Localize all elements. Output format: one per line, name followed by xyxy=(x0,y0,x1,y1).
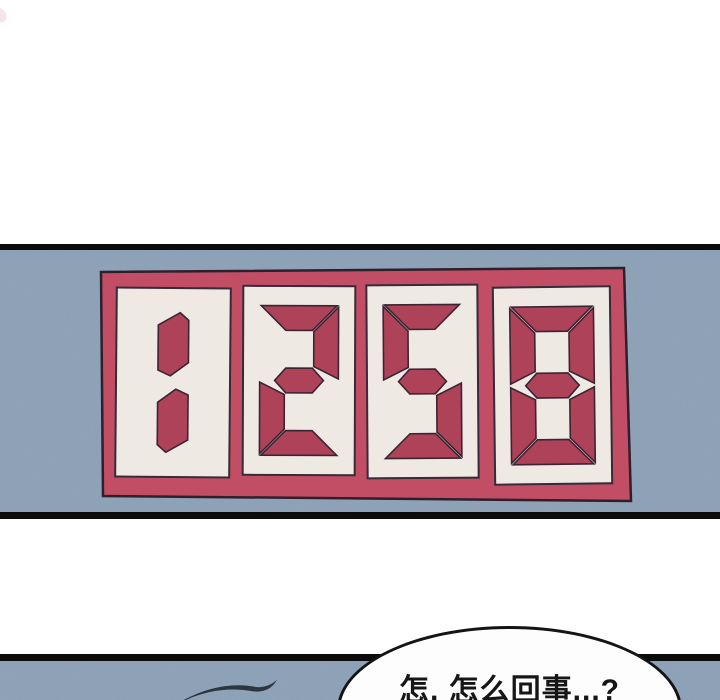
speech-bubble-text: 怎, 怎么回事...? xyxy=(340,665,679,700)
digit-card-1 xyxy=(115,288,231,478)
digit-card-2 xyxy=(243,286,356,475)
comic-page: 怎, 怎么回事...? xyxy=(0,0,720,700)
pink-smudge xyxy=(0,8,6,23)
flip-clock xyxy=(101,268,631,501)
comic-artwork-layer xyxy=(0,0,720,700)
digit-card-4 xyxy=(493,286,612,484)
digit-card-3 xyxy=(366,285,478,479)
